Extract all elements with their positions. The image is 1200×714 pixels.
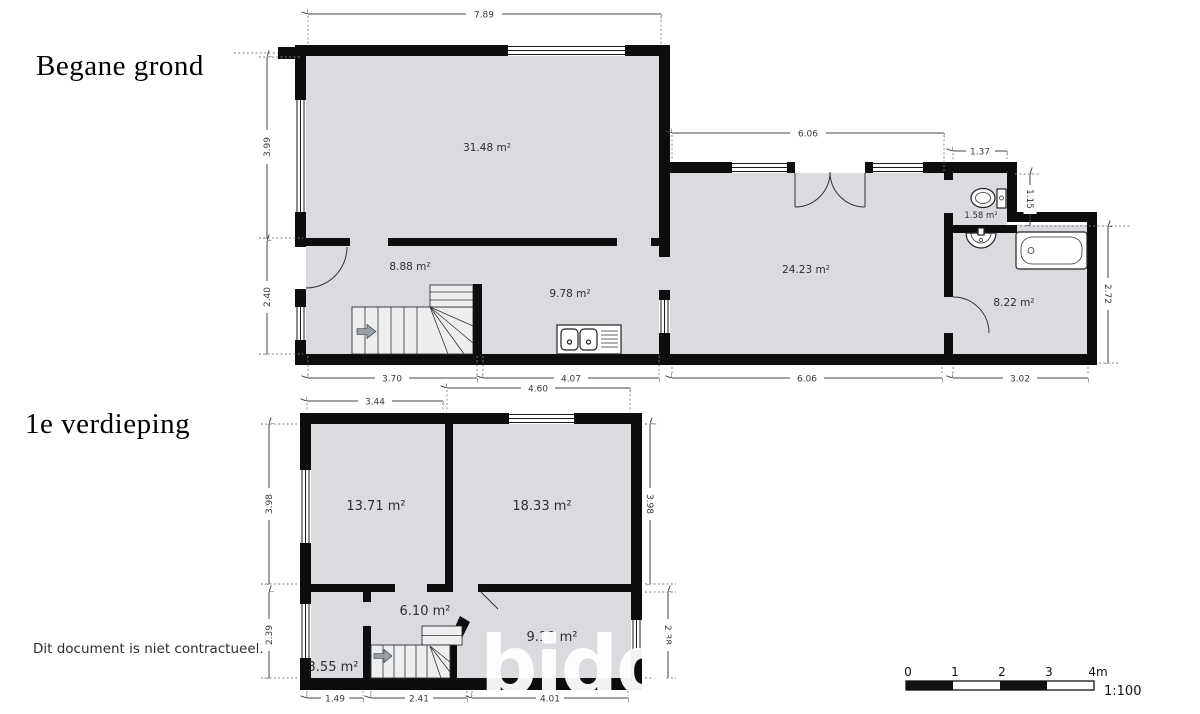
scale-tick-1: 1 [951,665,959,679]
svg-text:3.99: 3.99 [263,137,273,157]
room-label-bedroom-left: 13.71 m² [346,499,405,514]
svg-text:6.06: 6.06 [798,130,818,140]
room-label-bathroom: 8.22 m² [993,297,1034,309]
bathtub [1016,232,1087,269]
svg-text:3.98: 3.98 [644,494,654,514]
svg-text:7.89: 7.89 [474,11,494,21]
kitchen-sink [557,325,621,354]
svg-text:1.15: 1.15 [1024,189,1034,209]
scale-tick-0: 0 [904,665,912,679]
room-label-wc: 1.58 m² [964,211,997,221]
room-label-living: 31.48 m² [463,142,511,154]
room-label-storage: 3.55 m² [308,660,359,675]
svg-text:3.44: 3.44 [365,398,385,408]
dim-ground-bottom-bath: 3.02 [953,367,1088,385]
dim-ground-bottom-family: 6.06 [672,367,942,385]
floorplan-page: 31.48 m² 8.88 m² 9.78 m² 24.23 m² 1.58 m… [0,0,1200,714]
room-label-family: 24.23 m² [782,264,830,276]
dim-ground-top-width: 7.89 [308,8,661,44]
dim-first-top-left: 3.44 [307,395,443,412]
scale-ratio: 1:100 [1104,684,1141,699]
room-label-bedroom-right: 18.33 m² [512,499,571,514]
svg-text:1.49: 1.49 [325,695,345,705]
svg-text:2.72: 2.72 [1102,284,1112,304]
toilet [971,189,1006,209]
svg-text:3.70: 3.70 [382,375,402,385]
room-label-landing: 6.10 m² [400,604,451,619]
dim-first-left-lower: 2.39 [261,592,297,678]
dim-first-left-upper: 3.98 [261,424,297,584]
scale-tick-2: 2 [998,665,1006,679]
dim-first-bottom-left: 1.49 [307,691,363,705]
svg-text:4.07: 4.07 [561,375,581,385]
scale-tick-3: 3 [1045,665,1053,679]
floorplan-drawing: 31.48 m² 8.88 m² 9.78 m² 24.23 m² 1.58 m… [0,0,1200,714]
room-label-kitchen: 9.78 m² [549,288,590,300]
dim-ground-wc-top: 1.37 [953,145,1007,160]
dim-first-top-right: 4.60 [447,382,630,412]
scale-bar: 0 1 2 3 4m 1:100 [904,665,1141,699]
scale-tick-4: 4m [1088,665,1107,679]
dim-first-right-upper: 3.98 [644,424,677,584]
svg-text:6.06: 6.06 [797,375,817,385]
svg-text:4.60: 4.60 [528,385,548,395]
svg-text:2.40: 2.40 [263,287,273,307]
room-label-hall: 8.88 m² [389,261,430,273]
dim-first-bottom-mid: 2.41 [371,691,467,705]
dim-ground-bath-right: 2.72 [1099,227,1118,363]
svg-text:3.02: 3.02 [1010,375,1030,385]
svg-text:2.41: 2.41 [409,695,429,705]
svg-text:3.98: 3.98 [265,494,275,514]
ground-floor-plan: 31.48 m² 8.88 m² 9.78 m² 24.23 m² 1.58 m… [234,8,1130,385]
svg-text:1.37: 1.37 [970,148,990,158]
watermark: bidd [480,626,671,706]
svg-text:2.39: 2.39 [265,625,275,645]
